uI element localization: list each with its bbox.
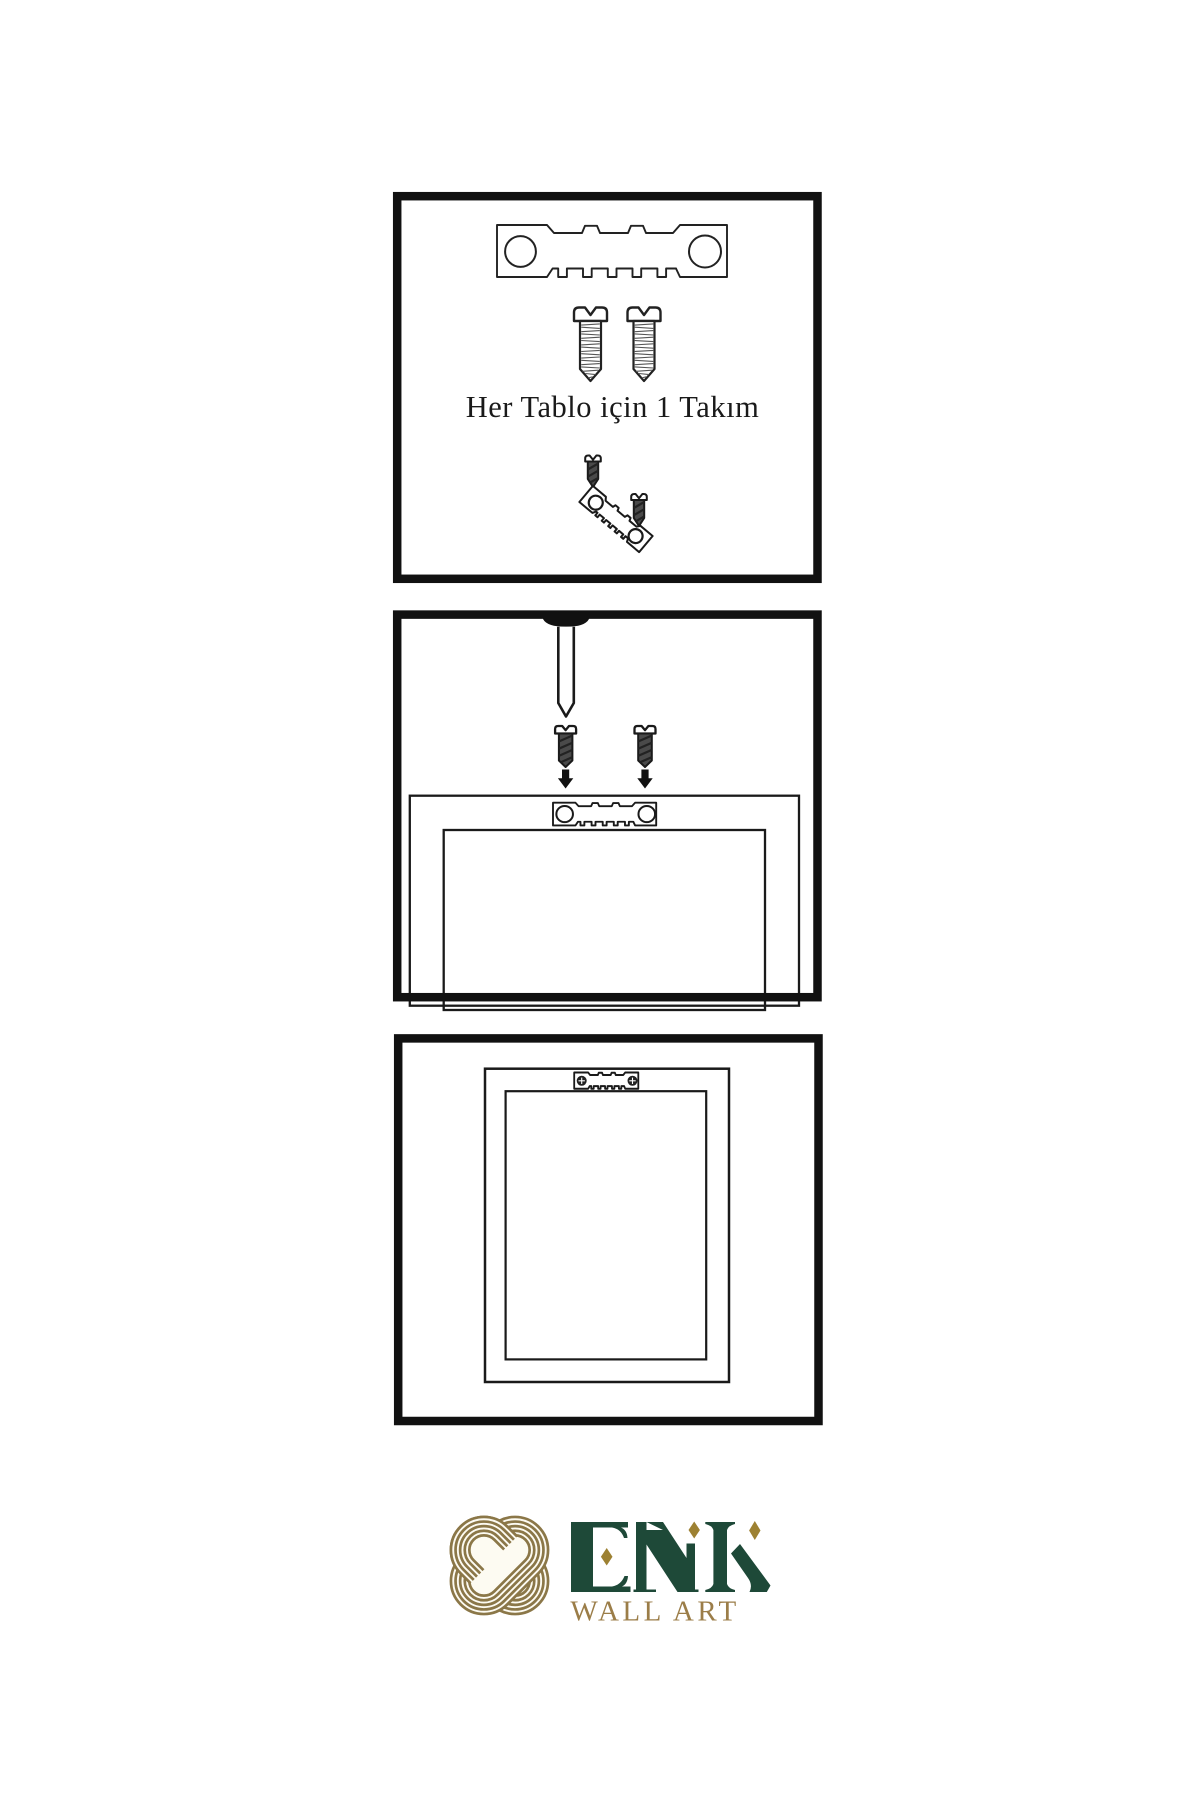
- svg-text:WALL ART: WALL ART: [570, 1596, 739, 1628]
- svg-text:Her Tablo için 1 Takım: Her Tablo için 1 Takım: [466, 390, 760, 424]
